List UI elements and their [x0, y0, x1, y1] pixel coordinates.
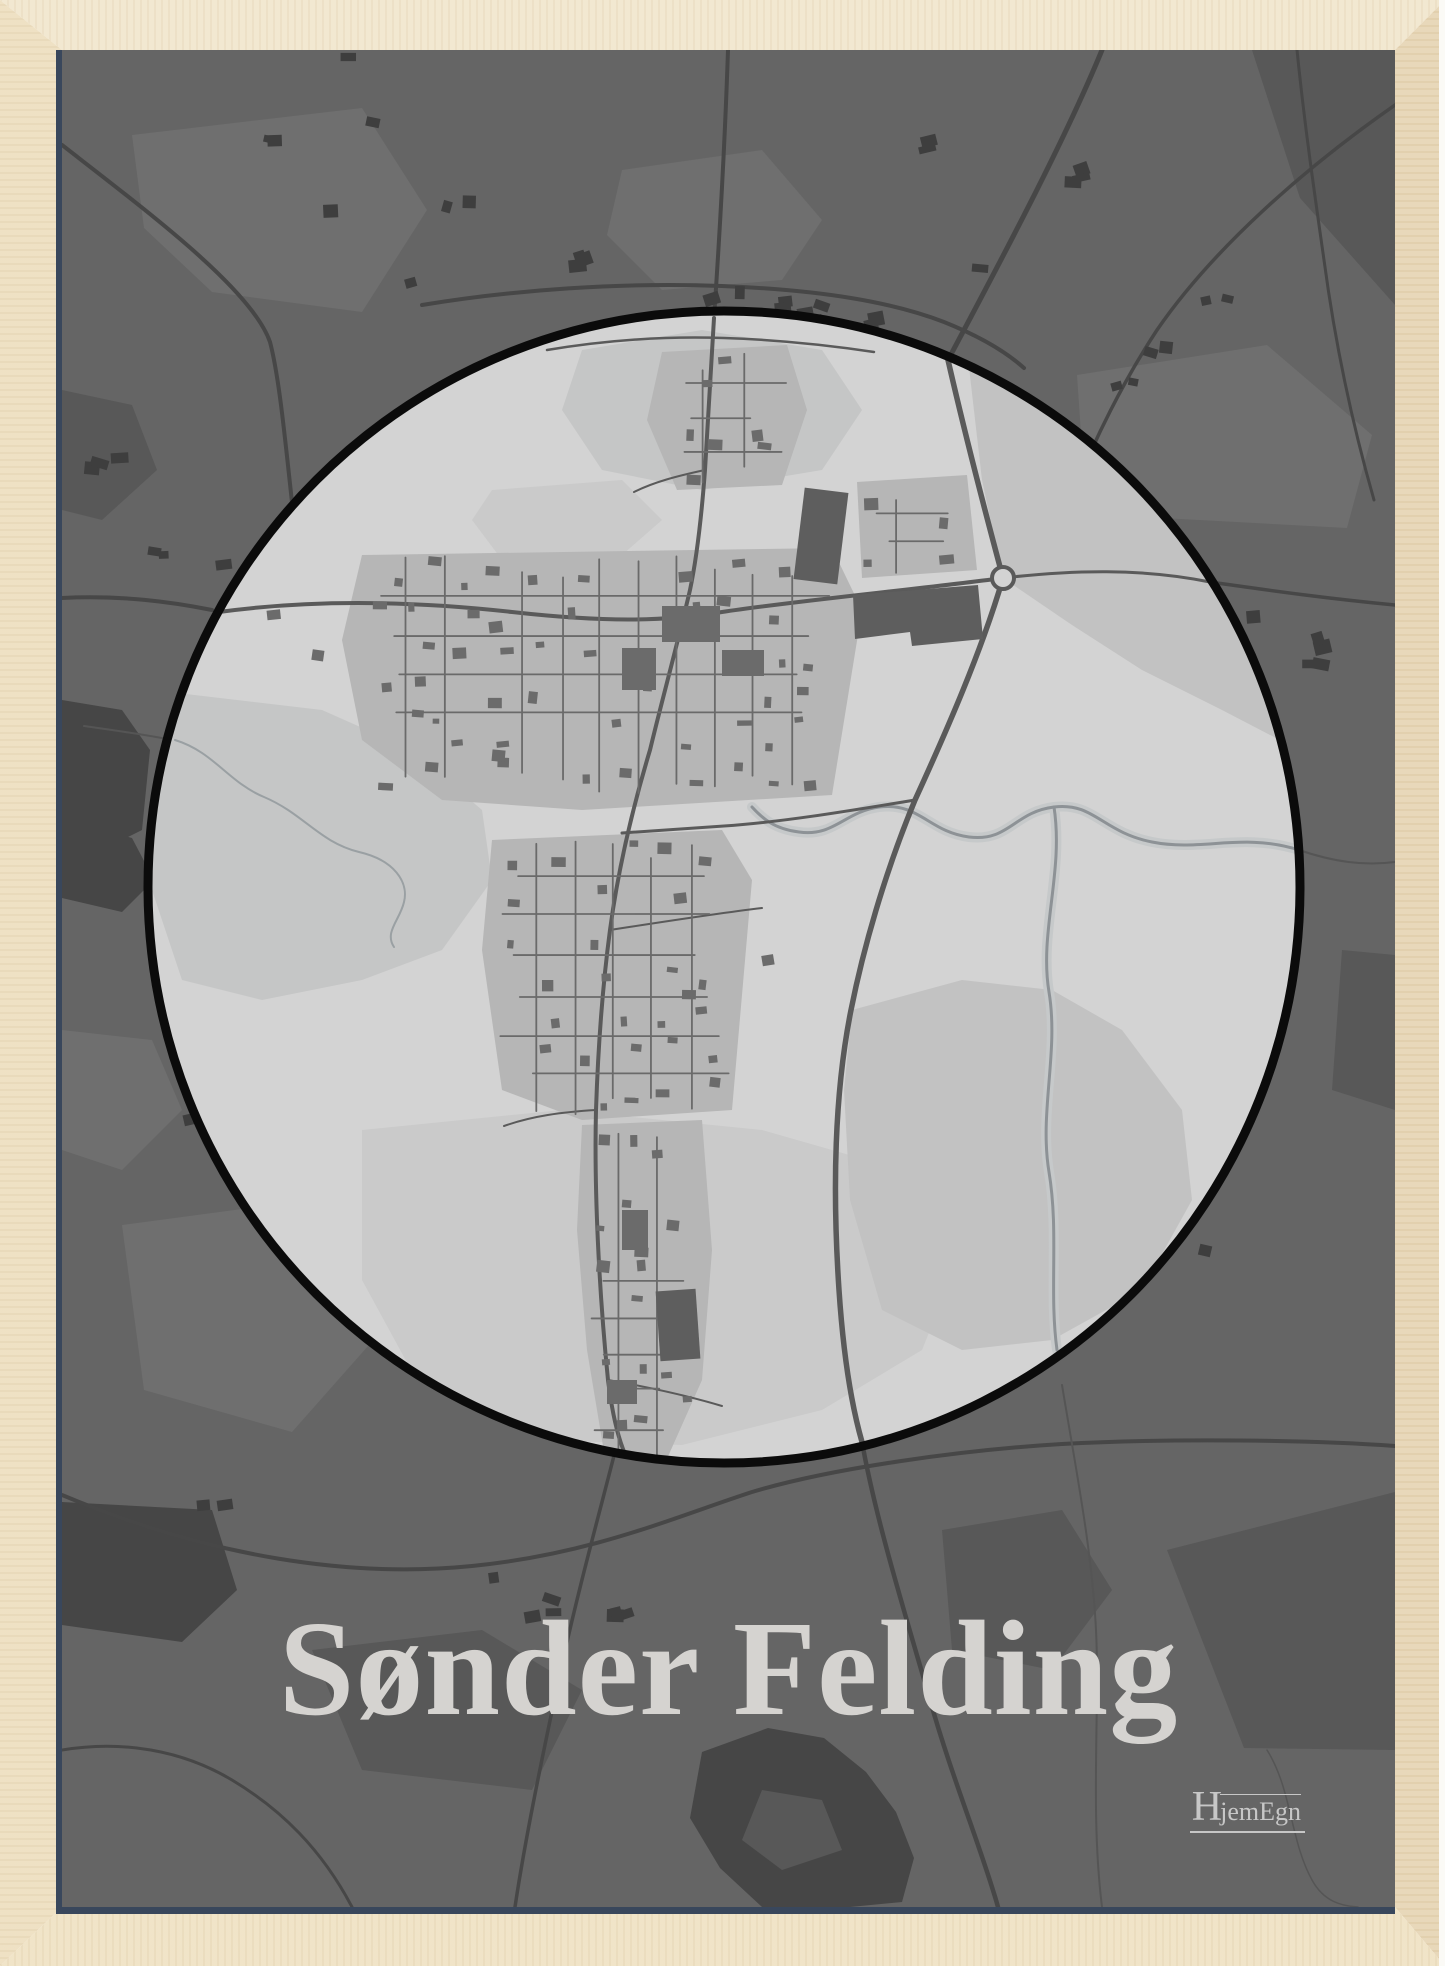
building — [528, 575, 538, 585]
building — [631, 1044, 642, 1052]
building — [590, 940, 598, 950]
building — [611, 719, 621, 728]
building — [508, 899, 520, 907]
building — [673, 892, 687, 904]
building — [488, 698, 502, 708]
farm-building — [1246, 610, 1261, 624]
farm-building — [323, 204, 338, 218]
farm-building — [972, 264, 989, 273]
building — [939, 554, 954, 564]
building — [678, 571, 693, 583]
building — [718, 356, 732, 364]
building — [661, 1372, 672, 1379]
building — [769, 781, 779, 787]
building — [709, 1077, 721, 1088]
building — [657, 1021, 665, 1028]
building — [507, 940, 514, 949]
building — [496, 741, 509, 748]
building — [598, 1134, 610, 1145]
farm-building — [1159, 341, 1173, 354]
building — [451, 739, 463, 746]
building — [378, 783, 393, 791]
building — [698, 856, 711, 866]
building — [551, 1018, 560, 1028]
building — [657, 842, 671, 854]
building — [864, 498, 879, 510]
farm-building — [111, 452, 129, 463]
building — [539, 1044, 551, 1053]
building — [267, 609, 281, 620]
building — [394, 578, 403, 587]
building — [702, 380, 713, 387]
building — [415, 676, 426, 687]
building — [734, 762, 743, 771]
brand-logo: HjemEgn — [1190, 1786, 1305, 1833]
building — [630, 1135, 637, 1147]
building — [620, 1016, 627, 1026]
building — [624, 1097, 638, 1103]
building — [761, 954, 774, 966]
building — [682, 990, 696, 999]
building — [803, 664, 813, 672]
building — [373, 602, 387, 610]
building — [381, 682, 392, 692]
building — [764, 697, 771, 708]
building — [708, 1055, 718, 1063]
building — [804, 780, 817, 791]
building — [779, 659, 786, 667]
building — [637, 1260, 646, 1272]
building — [423, 642, 436, 650]
building — [751, 429, 763, 442]
poster-title: Sønder Felding — [62, 1601, 1395, 1737]
building — [467, 610, 479, 618]
building — [500, 647, 514, 654]
farm-building — [867, 311, 885, 328]
building — [311, 649, 324, 661]
building — [716, 596, 731, 607]
building — [634, 1415, 648, 1424]
farm-building — [1064, 176, 1081, 188]
framed-map-poster: Sønder Felding HjemEgn — [0, 0, 1445, 1966]
farm-building — [462, 195, 476, 208]
building — [425, 762, 439, 773]
building — [794, 716, 803, 722]
building — [690, 780, 704, 786]
building — [681, 744, 691, 750]
building — [617, 1420, 628, 1431]
building — [584, 650, 597, 657]
building — [765, 743, 773, 751]
building — [568, 607, 576, 619]
building — [507, 861, 517, 871]
building — [600, 1103, 607, 1110]
building — [631, 1295, 643, 1302]
building — [408, 602, 414, 611]
building — [461, 583, 468, 590]
building — [666, 1220, 679, 1232]
frame-highlight-edge — [1439, 0, 1445, 1966]
farm-building — [217, 1499, 234, 1512]
building — [578, 575, 590, 583]
farm-building — [267, 135, 282, 147]
building — [656, 1089, 670, 1097]
building — [412, 710, 424, 718]
building — [580, 1055, 590, 1066]
building — [939, 517, 949, 529]
roundabout — [992, 567, 1014, 589]
building — [596, 1225, 604, 1231]
building — [596, 1260, 610, 1273]
building — [603, 1431, 614, 1439]
building — [708, 439, 723, 450]
building — [622, 1200, 632, 1208]
building — [485, 566, 499, 576]
building — [686, 429, 694, 441]
building — [491, 749, 505, 762]
building — [619, 768, 632, 778]
building — [698, 979, 706, 990]
building — [597, 885, 607, 894]
farm-building — [1302, 660, 1318, 669]
building — [737, 720, 752, 726]
building — [551, 857, 566, 867]
building — [528, 691, 538, 704]
building — [542, 980, 553, 991]
building — [433, 719, 440, 724]
building — [428, 556, 442, 566]
farm-building — [341, 53, 356, 61]
building — [863, 560, 871, 567]
building — [695, 1006, 707, 1014]
building — [652, 1150, 663, 1159]
farm-building — [196, 1499, 210, 1511]
building — [640, 1364, 647, 1374]
building — [686, 475, 701, 486]
building — [683, 1396, 692, 1403]
building — [779, 567, 791, 578]
brand-initial: H — [1192, 1784, 1222, 1830]
building — [797, 687, 809, 695]
building — [583, 774, 590, 783]
building — [535, 641, 544, 648]
building — [452, 647, 466, 659]
farm-building — [735, 286, 745, 299]
building — [769, 615, 779, 624]
brand-rest: jemEgn — [1220, 1794, 1301, 1826]
building — [629, 840, 638, 847]
building — [602, 1359, 610, 1365]
farm-building — [488, 1572, 499, 1584]
farm-building — [215, 559, 232, 571]
building — [488, 621, 503, 634]
building — [601, 973, 611, 981]
building — [667, 1037, 677, 1044]
building — [732, 559, 746, 568]
poster: Sønder Felding HjemEgn — [62, 50, 1395, 1907]
